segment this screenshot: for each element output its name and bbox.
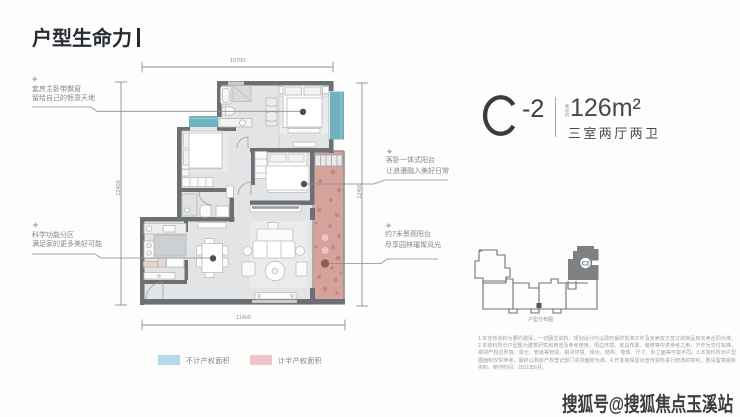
svg-text:11400: 11400 xyxy=(236,315,251,321)
svg-text:12400: 12400 xyxy=(116,180,122,195)
svg-text:12400: 12400 xyxy=(357,183,363,198)
svg-text:10700: 10700 xyxy=(230,58,245,64)
svg-text:C2: C2 xyxy=(582,261,590,267)
